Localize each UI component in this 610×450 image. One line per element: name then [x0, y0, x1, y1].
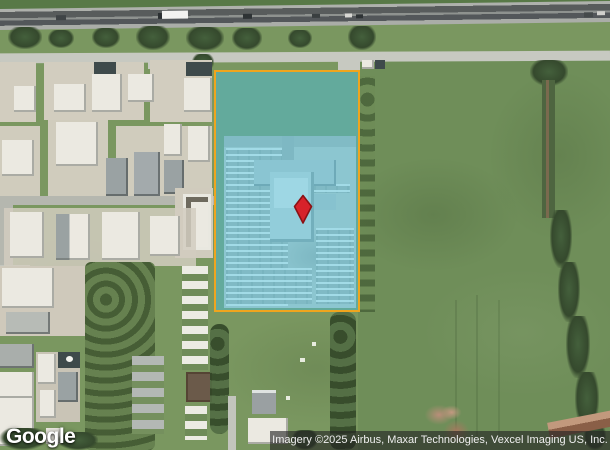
tree: [232, 28, 262, 50]
warehouse-roof: [102, 212, 140, 260]
vehicle: [162, 11, 188, 19]
warehouse-roof: [38, 354, 56, 384]
tree: [48, 30, 74, 48]
roof-logo: [66, 356, 73, 362]
warehouse-roof: [184, 78, 212, 112]
hay-bale: [312, 342, 316, 346]
map-canvas[interactable]: Google Imagery ©2025 Airbus, Maxar Techn…: [0, 0, 610, 450]
warehouse-roof: [94, 62, 116, 74]
tree-line: [566, 316, 590, 378]
tree-line: [558, 262, 580, 322]
vehicle: [597, 11, 605, 15]
tree-line: [330, 312, 356, 450]
tree-line: [550, 210, 572, 268]
warehouse-roof: [6, 312, 50, 334]
vehicle: [56, 15, 66, 20]
warehouse-roof: [134, 152, 160, 196]
parcel-highlight-fill: [216, 72, 358, 310]
tree: [92, 28, 120, 48]
location-marker-icon[interactable]: [292, 194, 314, 225]
field-track: [476, 295, 478, 440]
attribution-bar: Imagery ©2025 Airbus, Maxar Technologies…: [270, 431, 610, 450]
warehouse-roof: [150, 216, 180, 256]
warehouse-roof: [92, 74, 122, 112]
barn-roof: [186, 372, 212, 402]
parcel-boundary[interactable]: [214, 70, 360, 312]
warehouse-roof: [54, 84, 86, 112]
warehouse-roof: [0, 344, 34, 368]
shed: [252, 390, 276, 414]
tree: [348, 26, 376, 50]
field-track: [498, 300, 500, 440]
driveway: [228, 396, 236, 450]
vehicle: [312, 14, 320, 18]
warehouse-roof: [14, 86, 36, 112]
warehouse-roof: [40, 390, 56, 418]
vehicle: [356, 14, 363, 18]
vehicle: [243, 14, 252, 19]
tree-line: [210, 324, 229, 434]
warehouse-roof: [2, 140, 34, 176]
open-field: [358, 58, 610, 450]
mobile-home-row: [185, 406, 207, 440]
mobile-home-row: [132, 356, 164, 434]
mobile-home-row: [182, 266, 208, 370]
warehouse-roof: [2, 268, 54, 308]
warehouse-roof: [106, 158, 128, 196]
tree: [8, 27, 42, 49]
warehouse-roof: [164, 124, 182, 156]
warehouse-roof: [56, 122, 98, 166]
tree-line: [360, 76, 375, 312]
warehouse-roof: [0, 372, 34, 398]
tree: [288, 30, 312, 48]
hay-bale: [300, 358, 305, 362]
shed: [375, 60, 385, 69]
drainage-ditch: [542, 80, 555, 218]
warehouse-roof: [56, 214, 90, 260]
vehicle: [345, 13, 352, 17]
warehouse-roof: [186, 62, 212, 76]
warehouse-roof: [128, 74, 154, 102]
tree: [186, 27, 224, 51]
vehicle: [584, 12, 593, 17]
shed: [362, 60, 374, 69]
warehouse-roof: [58, 372, 78, 402]
hay-bale: [286, 396, 290, 400]
tree: [136, 26, 170, 50]
google-logo[interactable]: Google: [6, 425, 75, 449]
warehouse-roof: [10, 212, 44, 258]
warehouse-roof: [188, 126, 210, 162]
